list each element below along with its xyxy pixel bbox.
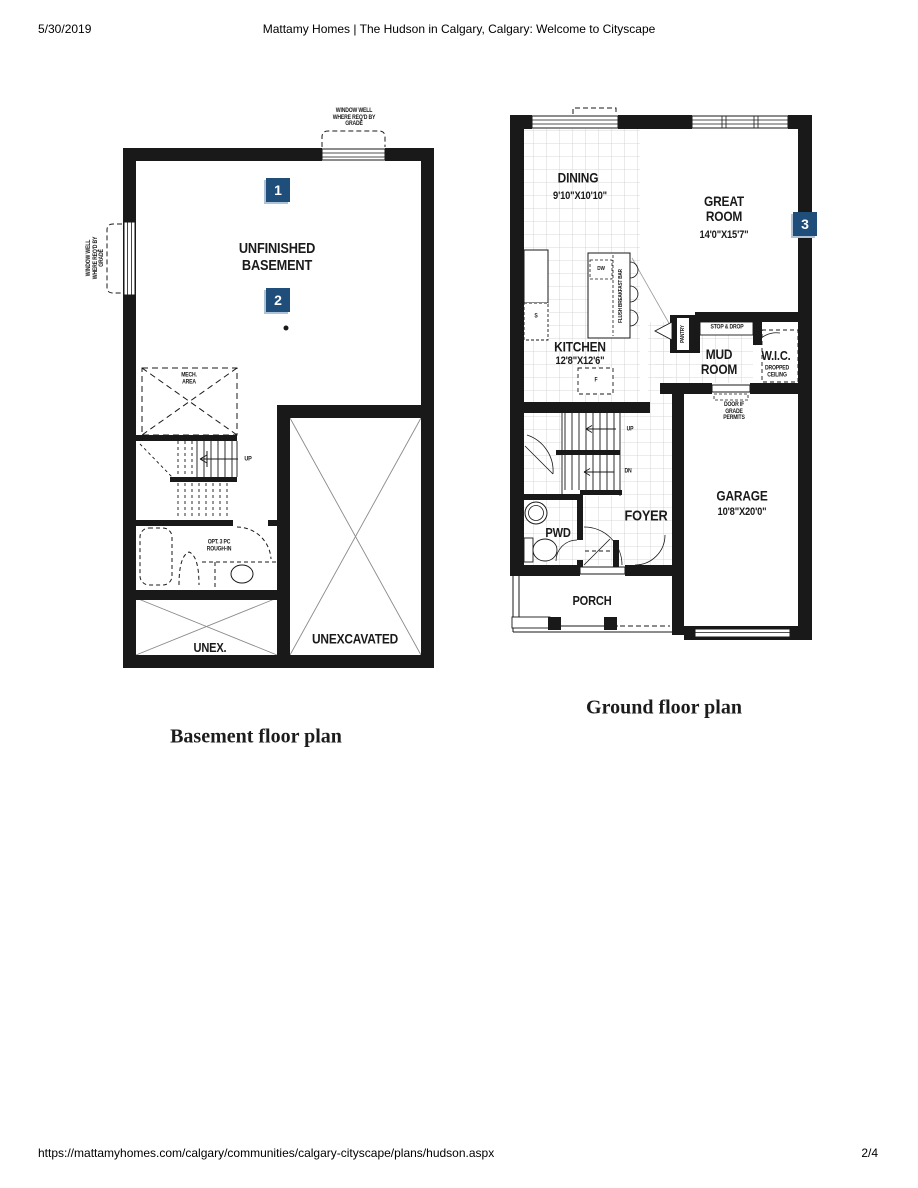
plan-dot bbox=[284, 326, 289, 331]
plan-marker-3: 3 bbox=[793, 212, 817, 236]
print-footer-page-number: 2/4 bbox=[861, 1146, 878, 1160]
flush-breakfast-bar-label: FLUSH BREAKFAST BAR bbox=[618, 269, 624, 323]
plan-marker-1: 1 bbox=[266, 178, 290, 202]
plan-marker-2: 2 bbox=[266, 288, 290, 312]
print-header-date: 5/30/2019 bbox=[38, 22, 91, 36]
porch-label: PORCH bbox=[572, 594, 611, 608]
rough-in-label: OPT. 3 PC ROUGH-IN bbox=[207, 539, 231, 552]
basement-up-label: UP bbox=[244, 456, 251, 463]
kitchen-island bbox=[588, 253, 638, 338]
door-if-grade-permits-label: DOOR IF GRADE PERMITS bbox=[723, 402, 744, 422]
print-page: 5/30/2019 Mattamy Homes | The Hudson in … bbox=[0, 0, 918, 1188]
print-header-title: Mattamy Homes | The Hudson in Calgary, C… bbox=[263, 22, 656, 36]
great-room-label: GREAT ROOM bbox=[704, 194, 744, 224]
dishwasher-label: DW bbox=[597, 266, 604, 272]
sink-label: S bbox=[534, 314, 537, 321]
basement-plan-caption: Basement floor plan bbox=[170, 726, 342, 749]
dining-label: DINING bbox=[558, 171, 599, 186]
wic-label: W.I.C. bbox=[761, 349, 790, 363]
mud-room-label: MUD ROOM bbox=[701, 347, 737, 377]
kitchen-dimensions: 12'8"X12'6" bbox=[556, 355, 605, 367]
kitchen-label: KITCHEN bbox=[554, 340, 606, 355]
rough-in-fixtures bbox=[140, 527, 277, 590]
pantry-label: PANTRY bbox=[680, 324, 686, 343]
foyer-label: FOYER bbox=[624, 508, 667, 525]
garage-dimensions: 10'8"X20'0" bbox=[718, 506, 767, 518]
ground-plan-caption: Ground floor plan bbox=[586, 697, 742, 720]
ground-dn-label: DN bbox=[624, 469, 631, 476]
great-room-dimensions: 14'0"X15'7" bbox=[700, 229, 749, 241]
unfinished-basement-label: UNFINISHED BASEMENT bbox=[239, 240, 315, 274]
unex-label: UNEX. bbox=[194, 641, 227, 655]
fridge-label: F bbox=[595, 378, 598, 385]
basement-window-well-top-label: WINDOW WELL WHERE REQ'D BY GRADE bbox=[333, 108, 375, 128]
ground-up-label: UP bbox=[627, 427, 634, 434]
basement-linework bbox=[107, 131, 434, 668]
garage-label: GARAGE bbox=[716, 489, 767, 504]
pwd-label: PWD bbox=[545, 526, 570, 540]
floor-plans-drawing bbox=[0, 0, 918, 1188]
unexcavated-label: UNEXCAVATED bbox=[312, 632, 398, 647]
basement-window-well-left-label: WINDOW WELL WHERE REQ'D BY GRADE bbox=[86, 237, 106, 279]
dining-dimensions: 9'10"X10'10" bbox=[553, 190, 607, 202]
print-footer-url: https://mattamyhomes.com/calgary/communi… bbox=[38, 1146, 494, 1160]
stop-and-drop-label: STOP & DROP bbox=[710, 325, 743, 332]
mech-area-label: MECH. AREA bbox=[181, 372, 197, 385]
dropped-ceiling-label: DROPPED CEILING bbox=[765, 365, 789, 378]
basement-walls bbox=[123, 148, 434, 668]
